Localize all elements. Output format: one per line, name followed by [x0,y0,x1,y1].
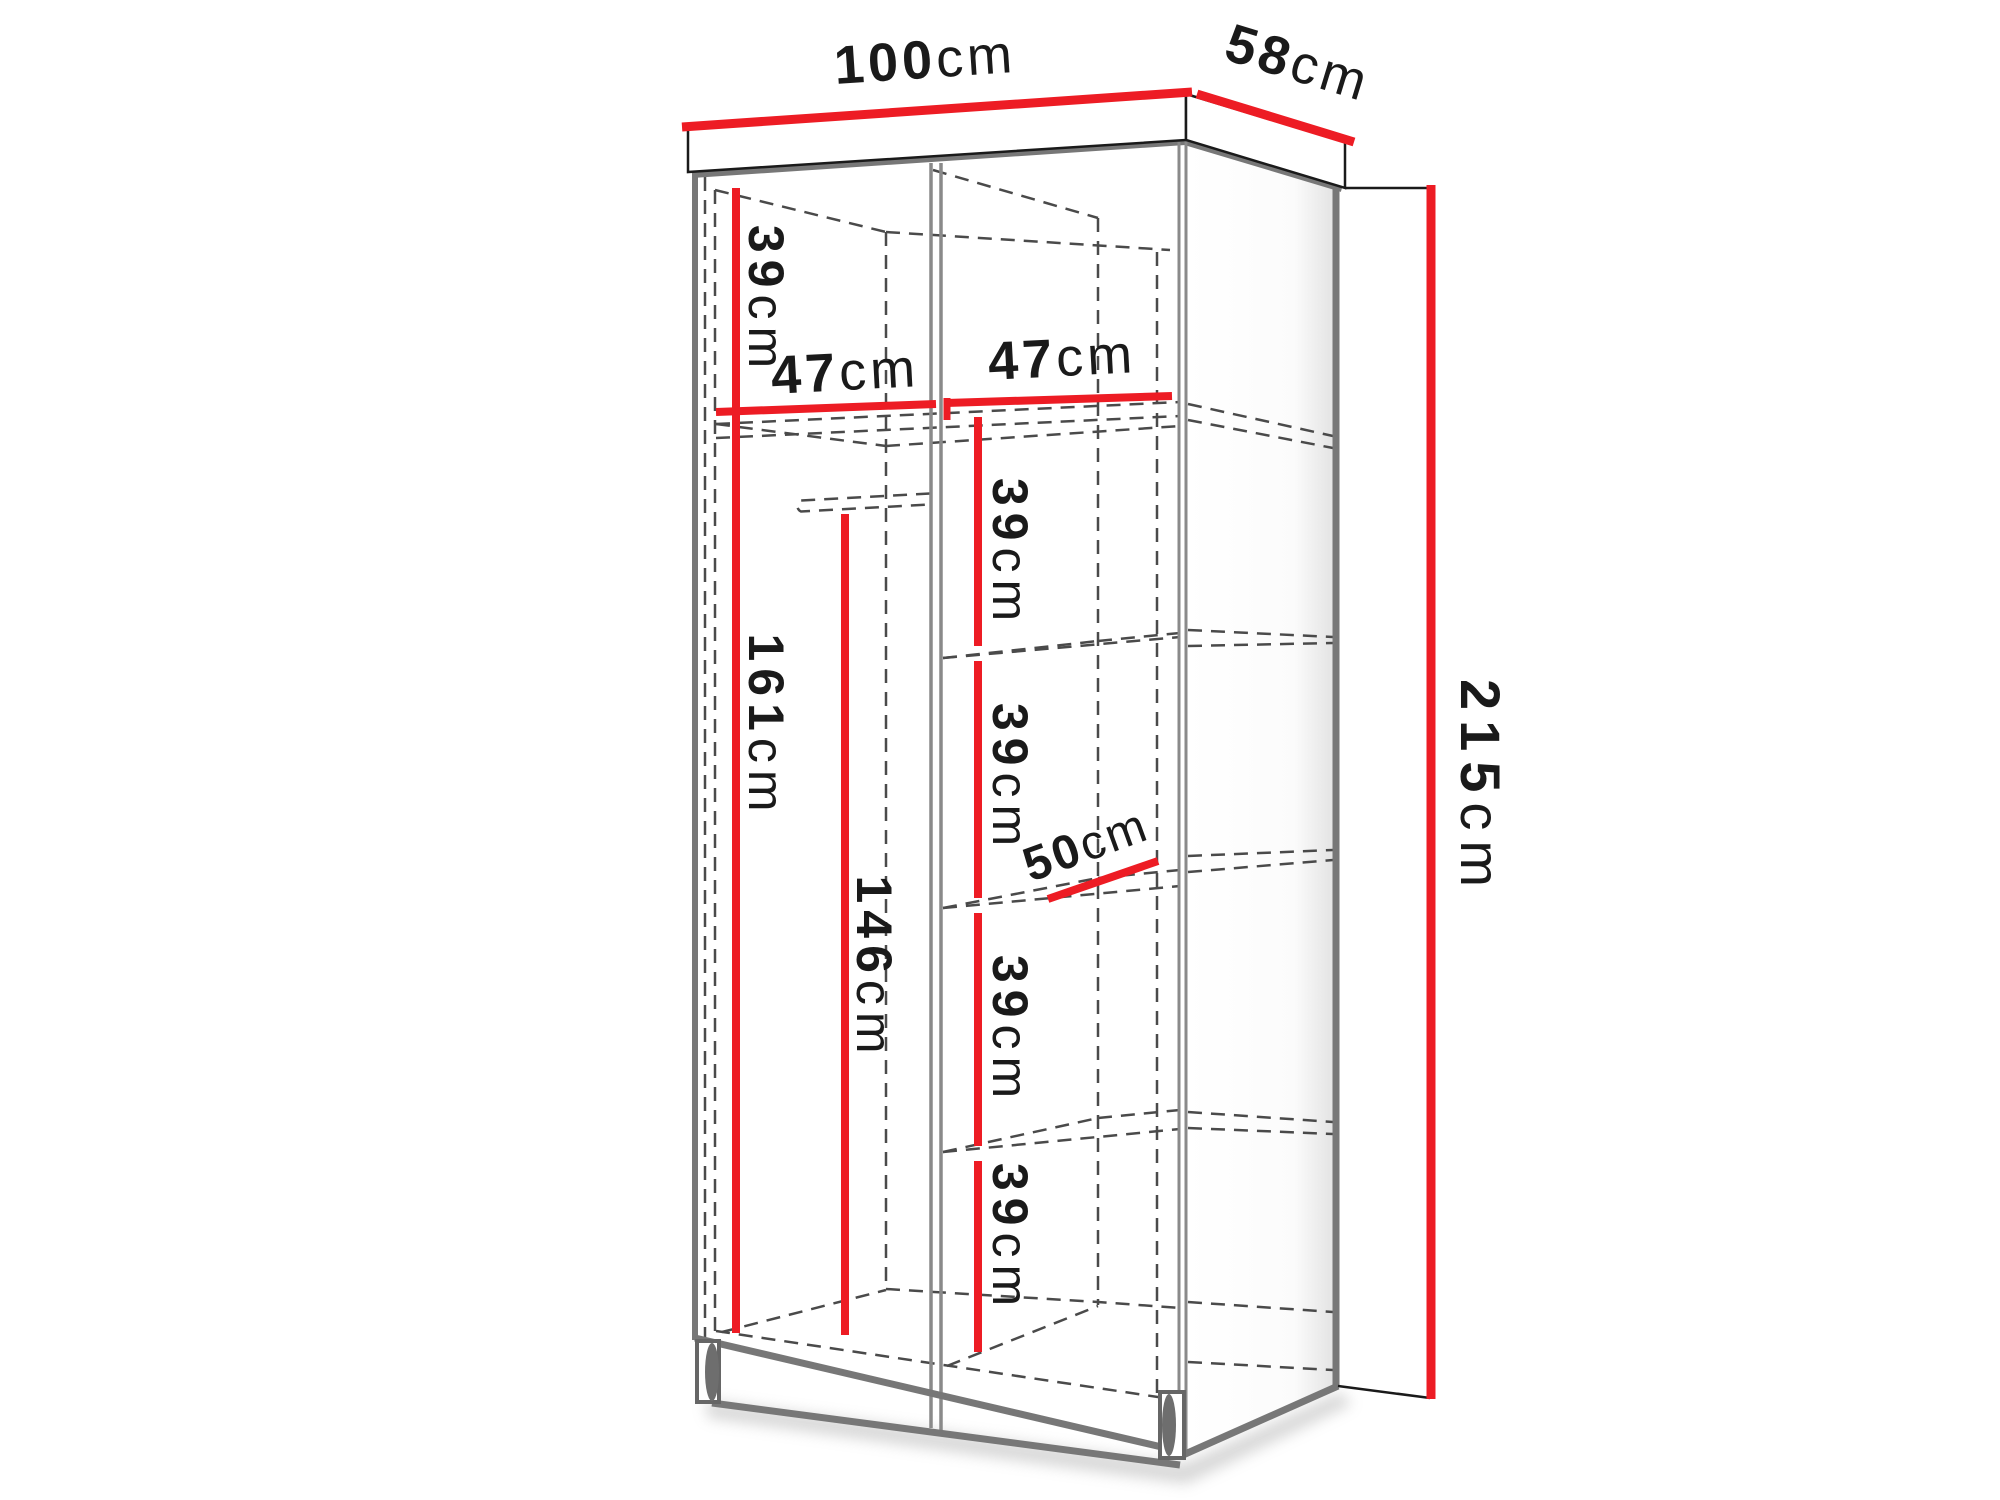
dimension-label-left-width: 47cm [770,338,921,406]
dimension-label-gap2: 39cm [982,703,1038,853]
dimension-label-gap3: 39cm [982,955,1038,1105]
side-panel [1188,141,1336,1452]
wardrobe-drawing [688,94,1430,1484]
dimension-label-rail-height: 146cm [846,875,902,1060]
dimension-label-height: 215cm [1450,679,1513,897]
dimension-line-right-width [946,396,1172,403]
left-foot-shade [705,1343,719,1401]
dimension-label-gap4: 39cm [982,1163,1038,1313]
dimension-label-depth: 58cm [1218,13,1377,114]
diagram-canvas: 100cm 58cm 215cm 39cm 47cm 47cm 39cm 39c… [0,0,2000,1500]
dimension-label-width: 100cm [832,24,1018,96]
dimension-line-left-width [716,404,936,412]
dimension-label-right-width: 47cm [987,324,1138,392]
right-foot-shade [1162,1394,1176,1456]
extension-line-bottom [1338,1386,1430,1398]
dimension-label-gap1: 39cm [982,478,1038,628]
dimension-label-left-height: 161cm [738,633,794,818]
dimension-labels: 100cm 58cm 215cm 39cm 47cm 47cm 39cm 39c… [738,13,1513,1313]
wardrobe-dimension-diagram: 100cm 58cm 215cm 39cm 47cm 47cm 39cm 39c… [0,0,2000,1500]
